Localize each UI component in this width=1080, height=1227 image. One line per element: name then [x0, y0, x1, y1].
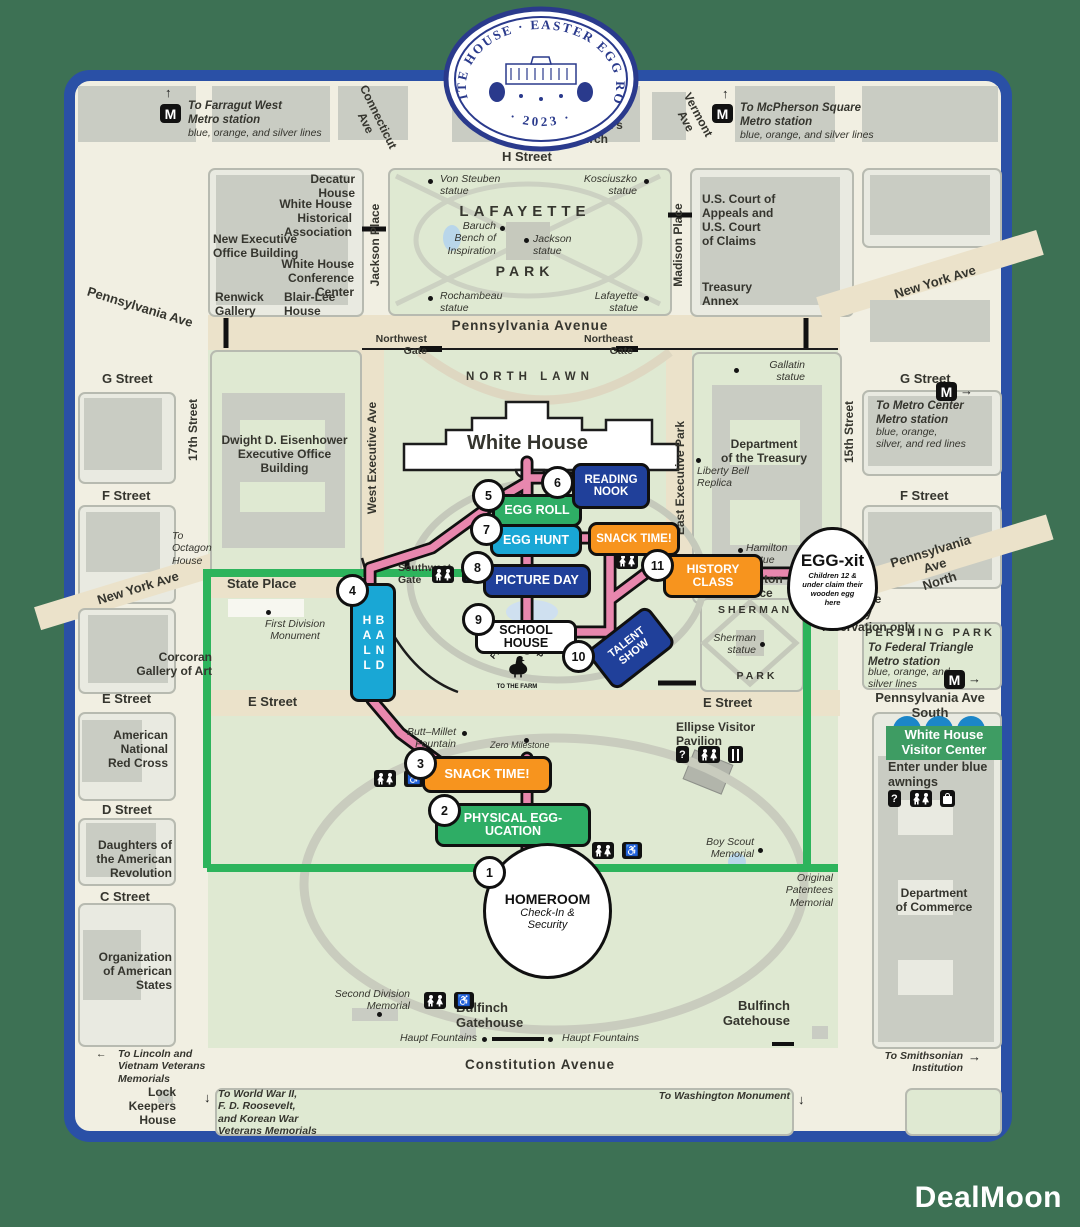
smithsonian-note: To Smithsonian Institution [845, 1050, 963, 1075]
arrow-up-icon: ↑ [165, 85, 172, 100]
station-badge-8: 8 [461, 551, 494, 584]
arrow-down-icon: ↓ [204, 1090, 211, 1105]
haupt-fountains-east-label: Haupt Fountains [562, 1032, 639, 1044]
liberty-bell-label: Liberty Bell Replica [697, 465, 749, 490]
commerce-label: Department of Commerce [872, 886, 996, 914]
station-badge-6: 6 [541, 466, 574, 499]
female-icon [444, 569, 451, 581]
dept-treasury-label: Department of the Treasury [705, 437, 823, 465]
building-courtyard [240, 482, 325, 512]
g-street-west-label: G Street [102, 371, 153, 386]
lafayette-statue-label: Lafayette statue [578, 290, 638, 315]
station-badge-3: 3 [404, 747, 437, 780]
mcpherson-metro-note: To McPherson Square Metro station [740, 102, 861, 129]
federal-triangle-lines: blue, orange, and silver lines [868, 666, 950, 691]
farragut-metro-note: To Farragut West Metro station [188, 100, 282, 127]
easter-egg-roll-map: To Farragut West Metro station blue, ora… [0, 0, 1080, 1227]
building [870, 300, 990, 342]
building [870, 175, 990, 235]
kosciuszko-label: Kosciuszko statue [575, 173, 637, 198]
gallatin-dot [734, 368, 739, 373]
pennsylvania-ave-south-label: Pennsylvania Ave South [862, 690, 998, 721]
butt-millet-label: Butt–Millet Fountain [356, 726, 456, 751]
restroom-icon [910, 790, 932, 807]
treasury-annex-label: Treasury Annex [702, 280, 752, 308]
egg-xit-note: Children 12 & under claim their wooden e… [802, 571, 862, 607]
accessible-icon: ♿ [454, 992, 474, 1009]
patentees-label: Original Patentees Memorial [748, 872, 833, 909]
female-icon [710, 749, 717, 761]
sherman-label: SHERMAN [710, 604, 800, 616]
park-label: PARK [480, 263, 570, 280]
mcpherson-metro-lines: blue, orange, and silver lines [740, 129, 874, 141]
boy-scout-dot [758, 848, 763, 853]
haupt-dot [548, 1037, 553, 1042]
arrow-right-icon: → [968, 671, 981, 686]
egg-xit-title: EGG-xit [801, 551, 864, 571]
jackson-place-label: Jackson Place [368, 204, 382, 287]
restroom-icon [432, 566, 454, 583]
event-logo: WHITE HOUSE · EASTER EGG ROLL · 2023 · [443, 6, 639, 152]
male-icon [595, 845, 602, 857]
arrow-right-icon: → [960, 383, 973, 398]
arrow-left-icon: ← [96, 1048, 107, 1060]
constitution-south-block [905, 1088, 1002, 1136]
station-egg-roll: EGG ROLL [492, 494, 582, 527]
rochambeau-label: Rochambeau statue [440, 290, 502, 315]
dar-label: Daughters of the American Revolution [76, 838, 172, 880]
station-badge-1: 1 [473, 856, 506, 889]
food-icon [728, 746, 743, 763]
baruch-dot [500, 226, 505, 231]
butt-millet-dot [462, 731, 467, 736]
rochambeau-dot [428, 296, 433, 301]
boy-scout-label: Boy Scout Memorial [672, 836, 754, 861]
lafayette-statue-dot [644, 296, 649, 301]
second-division-label: Second Division Memorial [300, 988, 410, 1013]
bulfinch-gatehouse-east [812, 1026, 828, 1039]
homeroom-title: HOMEROOM [505, 891, 591, 907]
fork-knife-glyph [731, 749, 740, 761]
second-division-dot [377, 1012, 382, 1017]
field-trip-bottom-text: TO THE FARM [497, 684, 538, 690]
metro-center-lines: blue, orange, silver, and red lines [876, 426, 966, 451]
station-snack-time-3: SNACK TIME! [422, 756, 552, 793]
sherman-dot [760, 642, 765, 647]
metro-center-note: To Metro Center Metro station [876, 400, 964, 427]
female-icon [436, 995, 443, 1007]
metro-icon: M [936, 382, 957, 401]
eisenhower-label: Dwight D. Eisenhower Executive Office Bu… [212, 433, 357, 475]
building [862, 86, 998, 142]
lock-keepers-label: Lock Keepers House [98, 1085, 176, 1127]
female-icon [604, 845, 611, 857]
liberty-bell-dot [696, 458, 701, 463]
male-icon [619, 555, 626, 567]
male-icon [913, 793, 920, 805]
visitor-center-enter-note: Enter under blue awnings [888, 760, 987, 790]
renwick-gallery-label: Renwick Gallery [215, 290, 264, 318]
madison-place-label: Madison Place [671, 203, 685, 286]
building [84, 398, 162, 470]
info-glyph: ? [891, 793, 898, 805]
watermark: DealMoon [915, 1181, 1062, 1215]
pennsylvania-avenue-label: Pennsylvania Avenue [420, 318, 640, 334]
female-icon [386, 773, 393, 785]
station-badge-9: 9 [462, 603, 495, 636]
red-cross-label: American National Red Cross [80, 728, 168, 770]
washington-monument-note: To Washington Monument [600, 1090, 790, 1102]
female-icon [922, 793, 929, 805]
von-steuben-dot [428, 179, 433, 184]
west-executive-ave-label: West Executive Ave [365, 402, 379, 514]
farragut-metro-lines: blue, orange, and silver lines [188, 127, 322, 139]
first-division-label: First Division Monument [250, 618, 340, 643]
northwest-gate-label: Northwest Gate [352, 333, 427, 358]
building-courtyard [898, 960, 953, 995]
arrow-up-icon: ↑ [722, 86, 729, 101]
male-icon [435, 569, 442, 581]
white-house-label: White House [440, 432, 615, 456]
lincoln-memorials-note: To Lincoln and Vietnam Veterans Memorial… [118, 1048, 205, 1085]
shop-icon [940, 790, 955, 807]
zero-milestone-label: Zero Milestone [490, 740, 550, 751]
accessible-icon: ♿ [622, 842, 642, 859]
lafayette-label: LAFAYETTE [450, 203, 600, 221]
male-icon [427, 995, 434, 1007]
metro-icon: M [712, 104, 733, 123]
metro-icon: M [944, 670, 965, 689]
station-badge-11: 11 [641, 549, 674, 582]
sherman-statue-label: Sherman statue [700, 632, 756, 657]
arrow-down-icon: ↓ [798, 1092, 805, 1107]
homeroom-sub: Check-In & Security [520, 907, 574, 931]
north-lawn-label: NORTH LAWN [455, 371, 605, 385]
bulfinch-east-label: Bulfinch Gatehouse [700, 998, 790, 1029]
station-egg-hunt: EGG HUNT [490, 524, 582, 557]
17th-street-label: 17th Street [186, 399, 200, 461]
station-badge-7: 7 [470, 513, 503, 546]
station-picture-day: PICTURE DAY [483, 564, 591, 598]
d-street-label: D Street [102, 802, 152, 817]
arrow-right-icon: → [968, 1049, 981, 1064]
station-badge-5: 5 [472, 479, 505, 512]
jackson-statue-label: Jackson statue [533, 233, 572, 258]
jackson-statue-dot [524, 238, 529, 243]
oas-label: Organization of American States [80, 950, 172, 992]
sherman-park-word: PARK [722, 670, 792, 682]
haupt-dot [482, 1037, 487, 1042]
female-icon [628, 555, 635, 567]
von-steuben-label: Von Steuben statue [440, 173, 500, 198]
to-octagon-house-label: To Octagon House [172, 530, 212, 567]
f-street-east-label: F Street [900, 488, 948, 503]
station-badge-2: 2 [428, 794, 461, 827]
station-reading-nook: READING NOOK [572, 463, 650, 509]
wheelchair-glyph: ♿ [457, 994, 471, 1007]
male-icon [701, 749, 708, 761]
station-history-class: HISTORY CLASS [663, 554, 763, 598]
c-street-label: C Street [100, 889, 150, 904]
e-street-east-label: E Street [703, 695, 752, 710]
male-icon [377, 773, 384, 785]
kosciuszko-dot [644, 179, 649, 184]
wheelchair-glyph: ♿ [625, 844, 639, 857]
restroom-icon [374, 770, 396, 787]
metro-icon: M [160, 104, 181, 123]
15th-street-label: 15th Street [842, 401, 856, 463]
station-badge-10: 10 [562, 640, 595, 673]
visitor-center-label: White House Visitor Center [886, 726, 1002, 760]
restroom-icon [698, 746, 720, 763]
info-icon: ? [676, 746, 689, 763]
station-badge-4: 4 [336, 574, 369, 607]
northeast-gate-label: Northeast Gate [558, 333, 633, 358]
ww2-memorials-note: To World War II, F. D. Roosevelt, and Ko… [218, 1088, 317, 1138]
east-executive-park-label: East Executive Park [673, 421, 687, 535]
info-icon: ? [888, 790, 901, 807]
hamilton-dot [738, 548, 743, 553]
first-division-dot [266, 610, 271, 615]
building-courtyard [730, 500, 800, 545]
zero-milestone-dot [524, 738, 529, 743]
e-street-west-label: E Street [102, 691, 151, 706]
info-glyph: ? [679, 749, 686, 761]
restroom-icon [592, 842, 614, 859]
us-courts-label: U.S. Court of Appeals and U.S. Court of … [702, 192, 775, 249]
building [86, 512, 160, 572]
e-street-mid-label: E Street [248, 694, 297, 709]
blair-lee-house-label: Blair-Lee House [284, 290, 335, 318]
f-street-west-label: F Street [102, 488, 150, 503]
chicken-legs [515, 675, 521, 678]
baruch-bench-label: Baruch Bench of Inspiration [430, 220, 496, 257]
ellipse-pavilion-label: Ellipse Visitor Pavilion [676, 720, 755, 748]
corcoran-label: Corcoran Gallery of Art [82, 650, 212, 678]
shop-glyph [943, 793, 952, 805]
restroom-icon [424, 992, 446, 1009]
state-place-label: State Place [227, 576, 296, 591]
constitution-avenue-label: Constitution Avenue [420, 1057, 660, 1073]
haupt-fountains-west-label: Haupt Fountains [377, 1032, 477, 1044]
gallatin-label: Gallatin statue [745, 359, 805, 384]
chicken-icon [509, 656, 527, 675]
